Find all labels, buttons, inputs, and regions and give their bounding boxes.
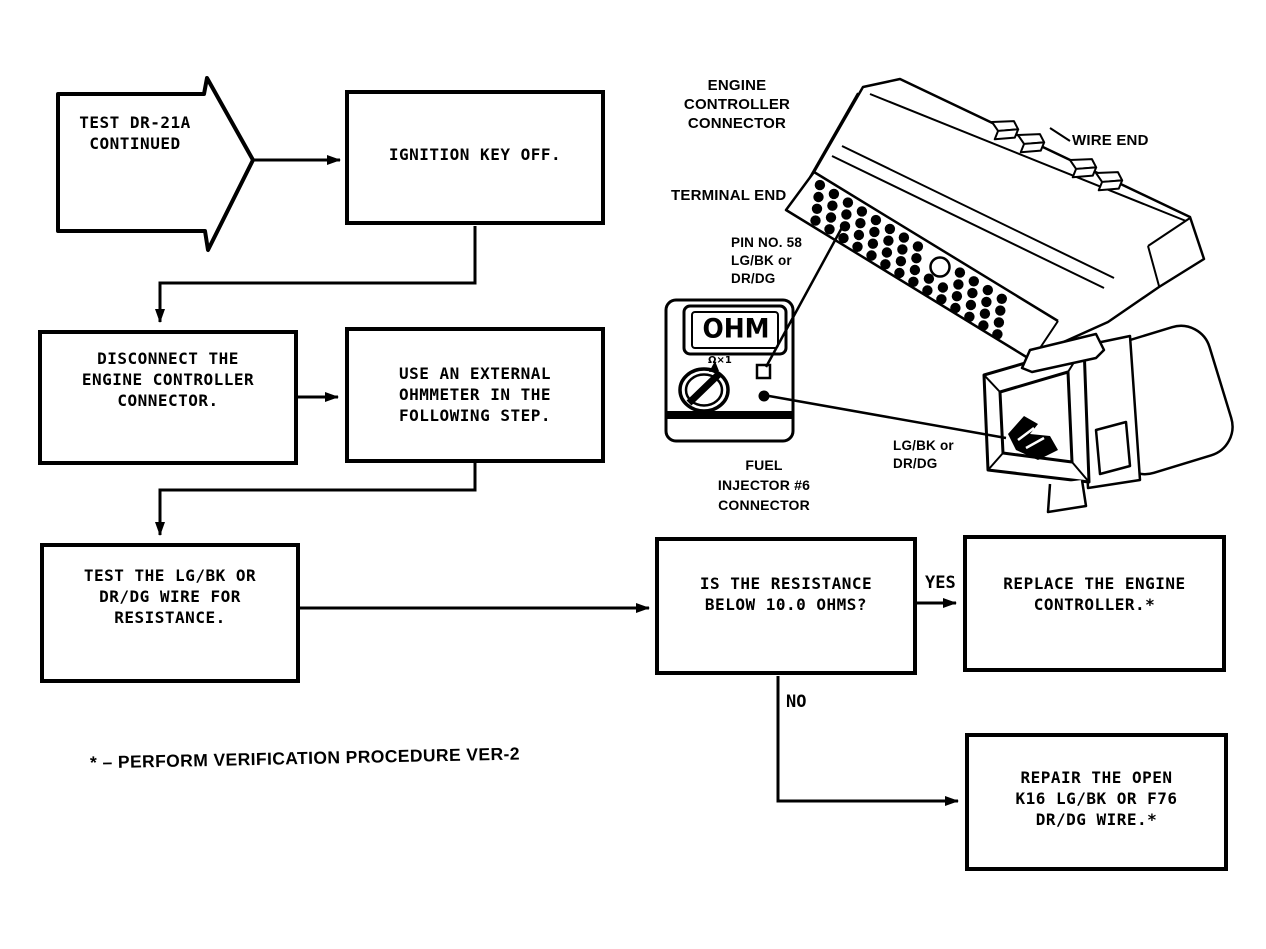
ohmmeter-jack-positive [757, 365, 770, 378]
injector-side-cutout [1096, 422, 1130, 474]
diagnostic-flowchart-page: TEST DR-21A CONTINUED IGNITION KEY OFF. … [0, 0, 1266, 949]
flow-box-decision-label: IS THE RESISTANCE BELOW 10.0 OHMS? [700, 573, 872, 671]
flow-box-use-meter-label: USE AN EXTERNAL OHMMETER IN THE FOLLOWIN… [399, 363, 551, 459]
flow-box-replace-label: REPLACE THE ENGINE CONTROLLER.* [1003, 573, 1185, 668]
label-terminal-end: TERMINAL END [671, 186, 786, 205]
flow-box-decision: IS THE RESISTANCE BELOW 10.0 OHMS? [655, 537, 917, 675]
label-pin-no-58: PIN NO. 58 LG/BK or DR/DG [731, 234, 826, 288]
label-engine-controller-connector: ENGINE CONTROLLER CONNECTOR [667, 76, 807, 133]
label-wire-end: WIRE END [1072, 131, 1149, 150]
continue-arrow-shape [58, 78, 253, 250]
injector-bottom-foot [1048, 480, 1086, 512]
start-symbol-label: TEST DR-21A CONTINUED [60, 112, 210, 154]
flow-box-disconnect: DISCONNECT THE ENGINE CONTROLLER CONNECT… [38, 330, 298, 465]
pin-58-highlight [931, 258, 950, 277]
branch-label-yes: YES [925, 573, 956, 593]
branch-label-no: NO [786, 692, 806, 712]
ecu-connector-illustration [786, 79, 1204, 358]
ohmmeter-display-text: OHM [694, 313, 778, 343]
label-fuel-injector-connector: FUEL INJECTOR #6 CONNECTOR [694, 455, 834, 515]
test-lead-to-injector [769, 396, 1006, 438]
flow-box-disconnect-label: DISCONNECT THE ENGINE CONTROLLER CONNECT… [82, 348, 254, 461]
flow-box-replace: REPLACE THE ENGINE CONTROLLER.* [963, 535, 1226, 672]
ohmmeter-bottom-band [667, 411, 792, 419]
flow-box-test-wire: TEST THE LG/BK OR DR/DG WIRE FOR RESISTA… [40, 543, 300, 683]
flow-box-ignition: IGNITION KEY OFF. [345, 90, 605, 225]
wire-end-leader [1050, 128, 1070, 141]
flow-box-ignition-label: IGNITION KEY OFF. [389, 144, 561, 221]
arrow-usemeter-to-testwire [160, 463, 475, 535]
flow-connectors [160, 160, 958, 801]
flow-box-repair: REPAIR THE OPEN K16 LG/BK OR F76 DR/DG W… [965, 733, 1228, 871]
ohmmeter-range-text: Ω×1 [708, 355, 732, 366]
flow-box-use-meter: USE AN EXTERNAL OHMMETER IN THE FOLLOWIN… [345, 327, 605, 463]
flow-box-repair-label: REPAIR THE OPEN K16 LG/BK OR F76 DR/DG W… [1015, 767, 1177, 867]
flow-box-test-wire-label: TEST THE LG/BK OR DR/DG WIRE FOR RESISTA… [84, 565, 256, 679]
label-wire-colors: LG/BK or DR/DG [893, 437, 954, 473]
ohmmeter-jack-negative [759, 391, 770, 402]
